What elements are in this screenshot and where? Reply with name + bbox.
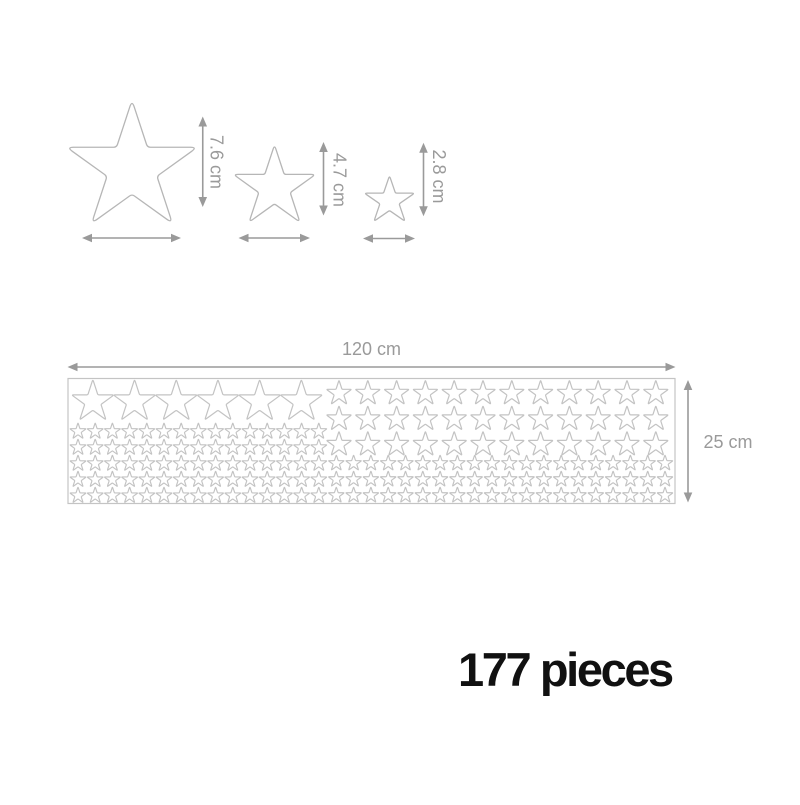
svg-text:120 cm: 120 cm	[342, 339, 401, 359]
svg-text:4.7 cm: 4.7 cm	[330, 153, 350, 207]
svg-text:2.8 cm: 2.8 cm	[429, 149, 449, 203]
svg-text:7.6 cm: 7.6 cm	[207, 135, 227, 189]
svg-text:25 cm: 25 cm	[704, 432, 753, 452]
